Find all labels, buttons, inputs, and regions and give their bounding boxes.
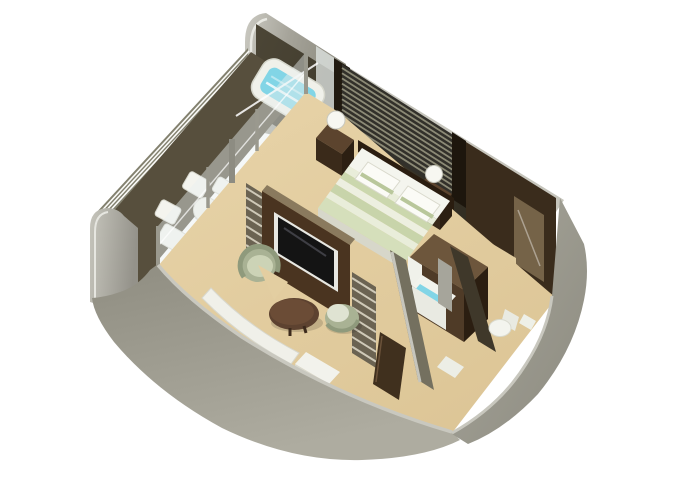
- floorplan-canvas: [0, 0, 680, 486]
- suite-floorplan-rendering: [0, 0, 680, 486]
- table-lamp: [426, 166, 443, 183]
- wall-post-right: [452, 132, 466, 208]
- table-lamp: [327, 111, 345, 129]
- bathroom-column: [438, 258, 452, 312]
